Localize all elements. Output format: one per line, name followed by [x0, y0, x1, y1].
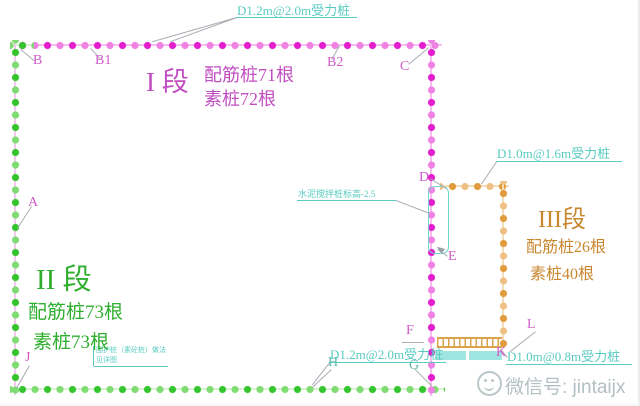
section-1-plain-count: 素桩72根	[204, 85, 276, 111]
callout-underline	[236, 17, 357, 18]
point-label-a: A	[28, 196, 38, 210]
point-label-j: J	[25, 351, 30, 365]
section-2-plain-count: 素桩73根	[33, 327, 109, 354]
leader-line	[170, 17, 237, 42]
pile-wall-bottom	[10, 384, 445, 395]
section-2-title: II 段	[36, 256, 92, 298]
pile-wall-s3-bottom-ladder	[437, 337, 502, 348]
pile-wall-top	[10, 40, 442, 51]
pile-layout-drawing: B B1 B2 C A D E F G H J K L D1.2m@2.0m受力…	[0, 0, 640, 406]
point-label-c: C	[400, 60, 409, 74]
section-1-title: I 段	[146, 60, 189, 99]
callout-underline	[496, 161, 622, 162]
section-3-reinforced-count: 配筋桩26根	[526, 233, 606, 257]
callout-underline	[329, 362, 446, 363]
note-corner-line2: 见详图	[96, 356, 117, 365]
callout-bottom-left-pile-spec: D1.2m@2.0m受力桩	[330, 348, 443, 361]
callout-right-pile-spec: D1.0m@1.6m受力桩	[497, 147, 610, 160]
pile-wall-s3-right	[498, 181, 509, 348]
point-label-e: E	[448, 250, 457, 264]
section-3-title: III段	[538, 199, 586, 234]
note-underline	[94, 366, 168, 367]
section-1-reinforced-count: 配筋桩71根	[204, 61, 294, 87]
point-label-f: F	[406, 324, 414, 338]
leader-line	[402, 342, 424, 343]
point-label-l: L	[527, 318, 536, 332]
wechat-icon	[477, 371, 502, 396]
point-label-k: K	[496, 346, 506, 360]
callout-top-pile-spec: D1.2m@2.0m受力桩	[237, 4, 350, 17]
section-2-reinforced-count: 配筋桩73根	[28, 297, 123, 324]
point-label-d: D	[419, 171, 429, 185]
section-3-plain-count: 素桩40根	[530, 260, 594, 284]
note-elevation: 水泥搅拌桩标高-2.5	[298, 189, 375, 199]
callout-underline	[506, 364, 632, 365]
point-label-b2: B2	[327, 56, 343, 70]
pile-wall-left	[10, 40, 21, 395]
point-label-b1: B1	[95, 54, 111, 68]
point-label-b: B	[33, 54, 42, 68]
leader-line	[396, 200, 429, 213]
callout-bottom-right-pile-spec: D1.0m@0.8m受力桩	[507, 350, 620, 363]
watermark-text: 微信号: jintaijx	[505, 372, 625, 399]
note-underline	[297, 200, 396, 201]
